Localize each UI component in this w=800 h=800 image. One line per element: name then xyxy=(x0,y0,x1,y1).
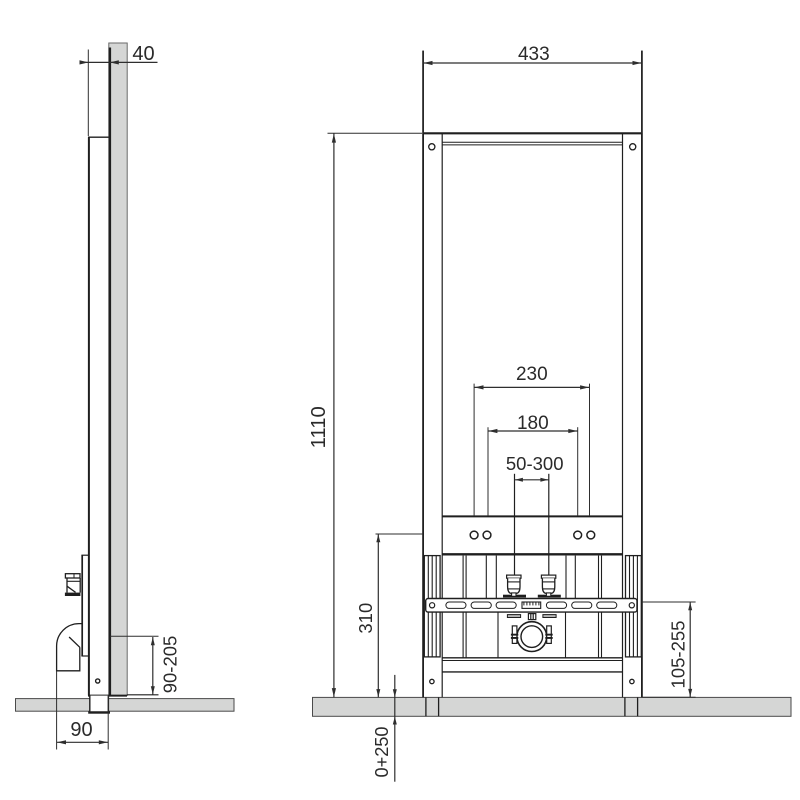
svg-text:90-205: 90-205 xyxy=(159,636,180,694)
svg-text:0+250: 0+250 xyxy=(372,726,392,777)
svg-text:1110: 1110 xyxy=(308,406,330,448)
svg-text:433: 433 xyxy=(518,44,550,65)
svg-text:230: 230 xyxy=(516,364,548,385)
svg-text:310: 310 xyxy=(355,603,376,634)
svg-text:105-255: 105-255 xyxy=(668,621,689,689)
svg-text:40: 40 xyxy=(132,43,154,65)
svg-text:180: 180 xyxy=(517,413,549,434)
svg-text:90: 90 xyxy=(70,719,92,741)
svg-text:50-300: 50-300 xyxy=(506,453,564,474)
